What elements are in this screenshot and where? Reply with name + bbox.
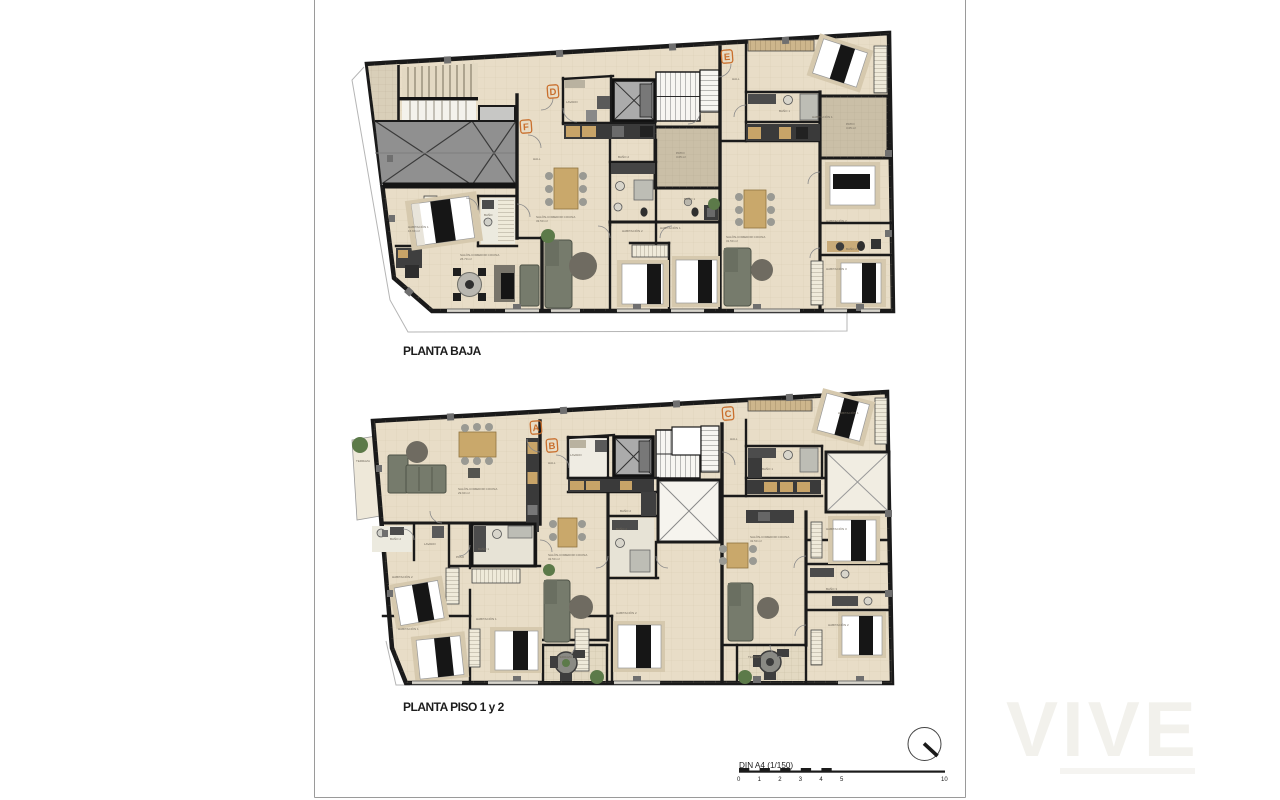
- svg-text:HABITACIÓN 2: HABITACIÓN 2: [616, 610, 637, 615]
- svg-text:HABITACIÓN 2: HABITACIÓN 2: [828, 622, 849, 627]
- svg-text:BAÑO 2: BAÑO 2: [616, 526, 627, 531]
- svg-text:3.05 m²: 3.05 m²: [676, 155, 686, 159]
- svg-text:29.90 m²: 29.90 m²: [458, 491, 470, 495]
- svg-text:BAÑO 2: BAÑO 2: [618, 154, 629, 159]
- svg-text:32.50 m²: 32.50 m²: [750, 539, 762, 543]
- svg-text:BAÑO 1: BAÑO 1: [684, 196, 695, 201]
- svg-text:BAÑO 1: BAÑO 1: [478, 546, 489, 551]
- svg-text:HABITACIÓN 1: HABITACIÓN 1: [812, 114, 833, 119]
- svg-text:16.60 m²: 16.60 m²: [408, 229, 420, 233]
- svg-text:A: A: [532, 423, 540, 434]
- svg-text:B: B: [548, 441, 556, 452]
- svg-text:BAÑO 2: BAÑO 2: [620, 508, 631, 513]
- svg-text:LAVADO: LAVADO: [566, 100, 578, 104]
- svg-text:HALL: HALL: [533, 157, 541, 161]
- svg-text:HABITACIÓN 1: HABITACIÓN 1: [838, 410, 859, 415]
- svg-text:HABITACIÓN 3: HABITACIÓN 3: [826, 526, 847, 531]
- svg-text:HABITACIÓN 3: HABITACIÓN 3: [826, 266, 847, 271]
- svg-text:E: E: [724, 52, 731, 63]
- svg-text:C: C: [724, 409, 732, 420]
- svg-text:HALL: HALL: [730, 437, 738, 441]
- svg-text:HALL: HALL: [548, 461, 556, 465]
- svg-text:F: F: [523, 122, 530, 133]
- svg-text:BAÑO 1: BAÑO 1: [762, 466, 773, 471]
- svg-text:TERRAZA: TERRAZA: [356, 459, 370, 463]
- svg-text:LAVADO: LAVADO: [424, 542, 436, 546]
- svg-text:PLANTA PISO 1 y 2: PLANTA PISO 1 y 2: [403, 700, 505, 714]
- svg-text:HALL: HALL: [732, 77, 740, 81]
- svg-text:HABITACIÓN 2: HABITACIÓN 2: [622, 228, 643, 233]
- svg-text:BAÑO 1: BAÑO 1: [779, 108, 790, 113]
- svg-text:PLANTA BAJA: PLANTA BAJA: [403, 344, 482, 358]
- svg-text:D: D: [549, 87, 557, 98]
- svg-text:33.50 m²: 33.50 m²: [536, 219, 548, 223]
- svg-text:BAÑO 2: BAÑO 2: [390, 536, 401, 541]
- svg-text:HABITACIÓN 1: HABITACIÓN 1: [476, 616, 497, 621]
- svg-text:PASO: PASO: [456, 555, 465, 559]
- svg-text:HABITACIÓN 2: HABITACIÓN 2: [826, 218, 847, 223]
- svg-text:BAÑO: BAÑO: [484, 212, 493, 217]
- svg-text:HABITACIÓN 1: HABITACIÓN 1: [398, 626, 419, 631]
- svg-text:31.50 m²: 31.50 m²: [726, 239, 738, 243]
- svg-text:TERRAZA: TERRAZA: [558, 655, 572, 659]
- svg-text:3.05 m²: 3.05 m²: [846, 126, 856, 130]
- svg-text:HABITACIÓN 1: HABITACIÓN 1: [660, 225, 681, 230]
- svg-text:26.70 m²: 26.70 m²: [460, 257, 472, 261]
- svg-text:BAÑO 3: BAÑO 3: [826, 586, 837, 591]
- svg-text:VIVE: VIVE: [1006, 685, 1200, 773]
- svg-text:32.50 m²: 32.50 m²: [548, 557, 560, 561]
- svg-text:10: 10: [941, 777, 948, 783]
- svg-text:TERRAZA: TERRAZA: [748, 655, 762, 659]
- svg-text:BAÑO 2: BAÑO 2: [846, 246, 857, 251]
- svg-text:HABITACIÓN 2: HABITACIÓN 2: [392, 574, 413, 579]
- svg-text:LAVADO: LAVADO: [570, 453, 582, 457]
